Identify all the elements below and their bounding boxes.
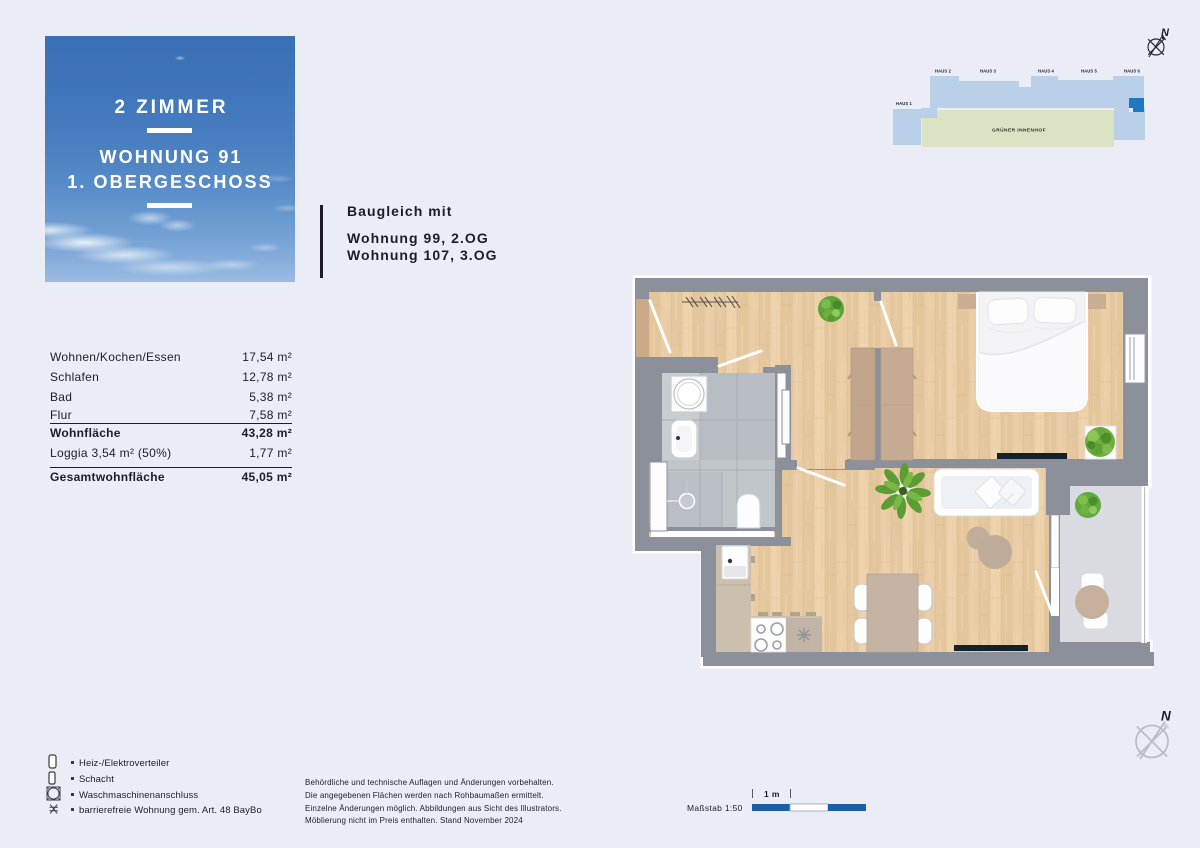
svg-text:HAUS 4: HAUS 4 <box>1038 69 1055 74</box>
svg-text:HAUS 5: HAUS 5 <box>1081 69 1098 74</box>
svg-text:HAUS 3: HAUS 3 <box>980 69 997 74</box>
svg-text:HAUS 6: HAUS 6 <box>1124 69 1141 74</box>
svg-text:N: N <box>1161 709 1171 724</box>
svg-text:HAUS 2: HAUS 2 <box>935 69 952 74</box>
svg-text:N: N <box>1161 27 1170 39</box>
svg-text:GRÜNER INNENHOF: GRÜNER INNENHOF <box>992 127 1046 134</box>
svg-text:HAUS 1: HAUS 1 <box>896 101 913 106</box>
